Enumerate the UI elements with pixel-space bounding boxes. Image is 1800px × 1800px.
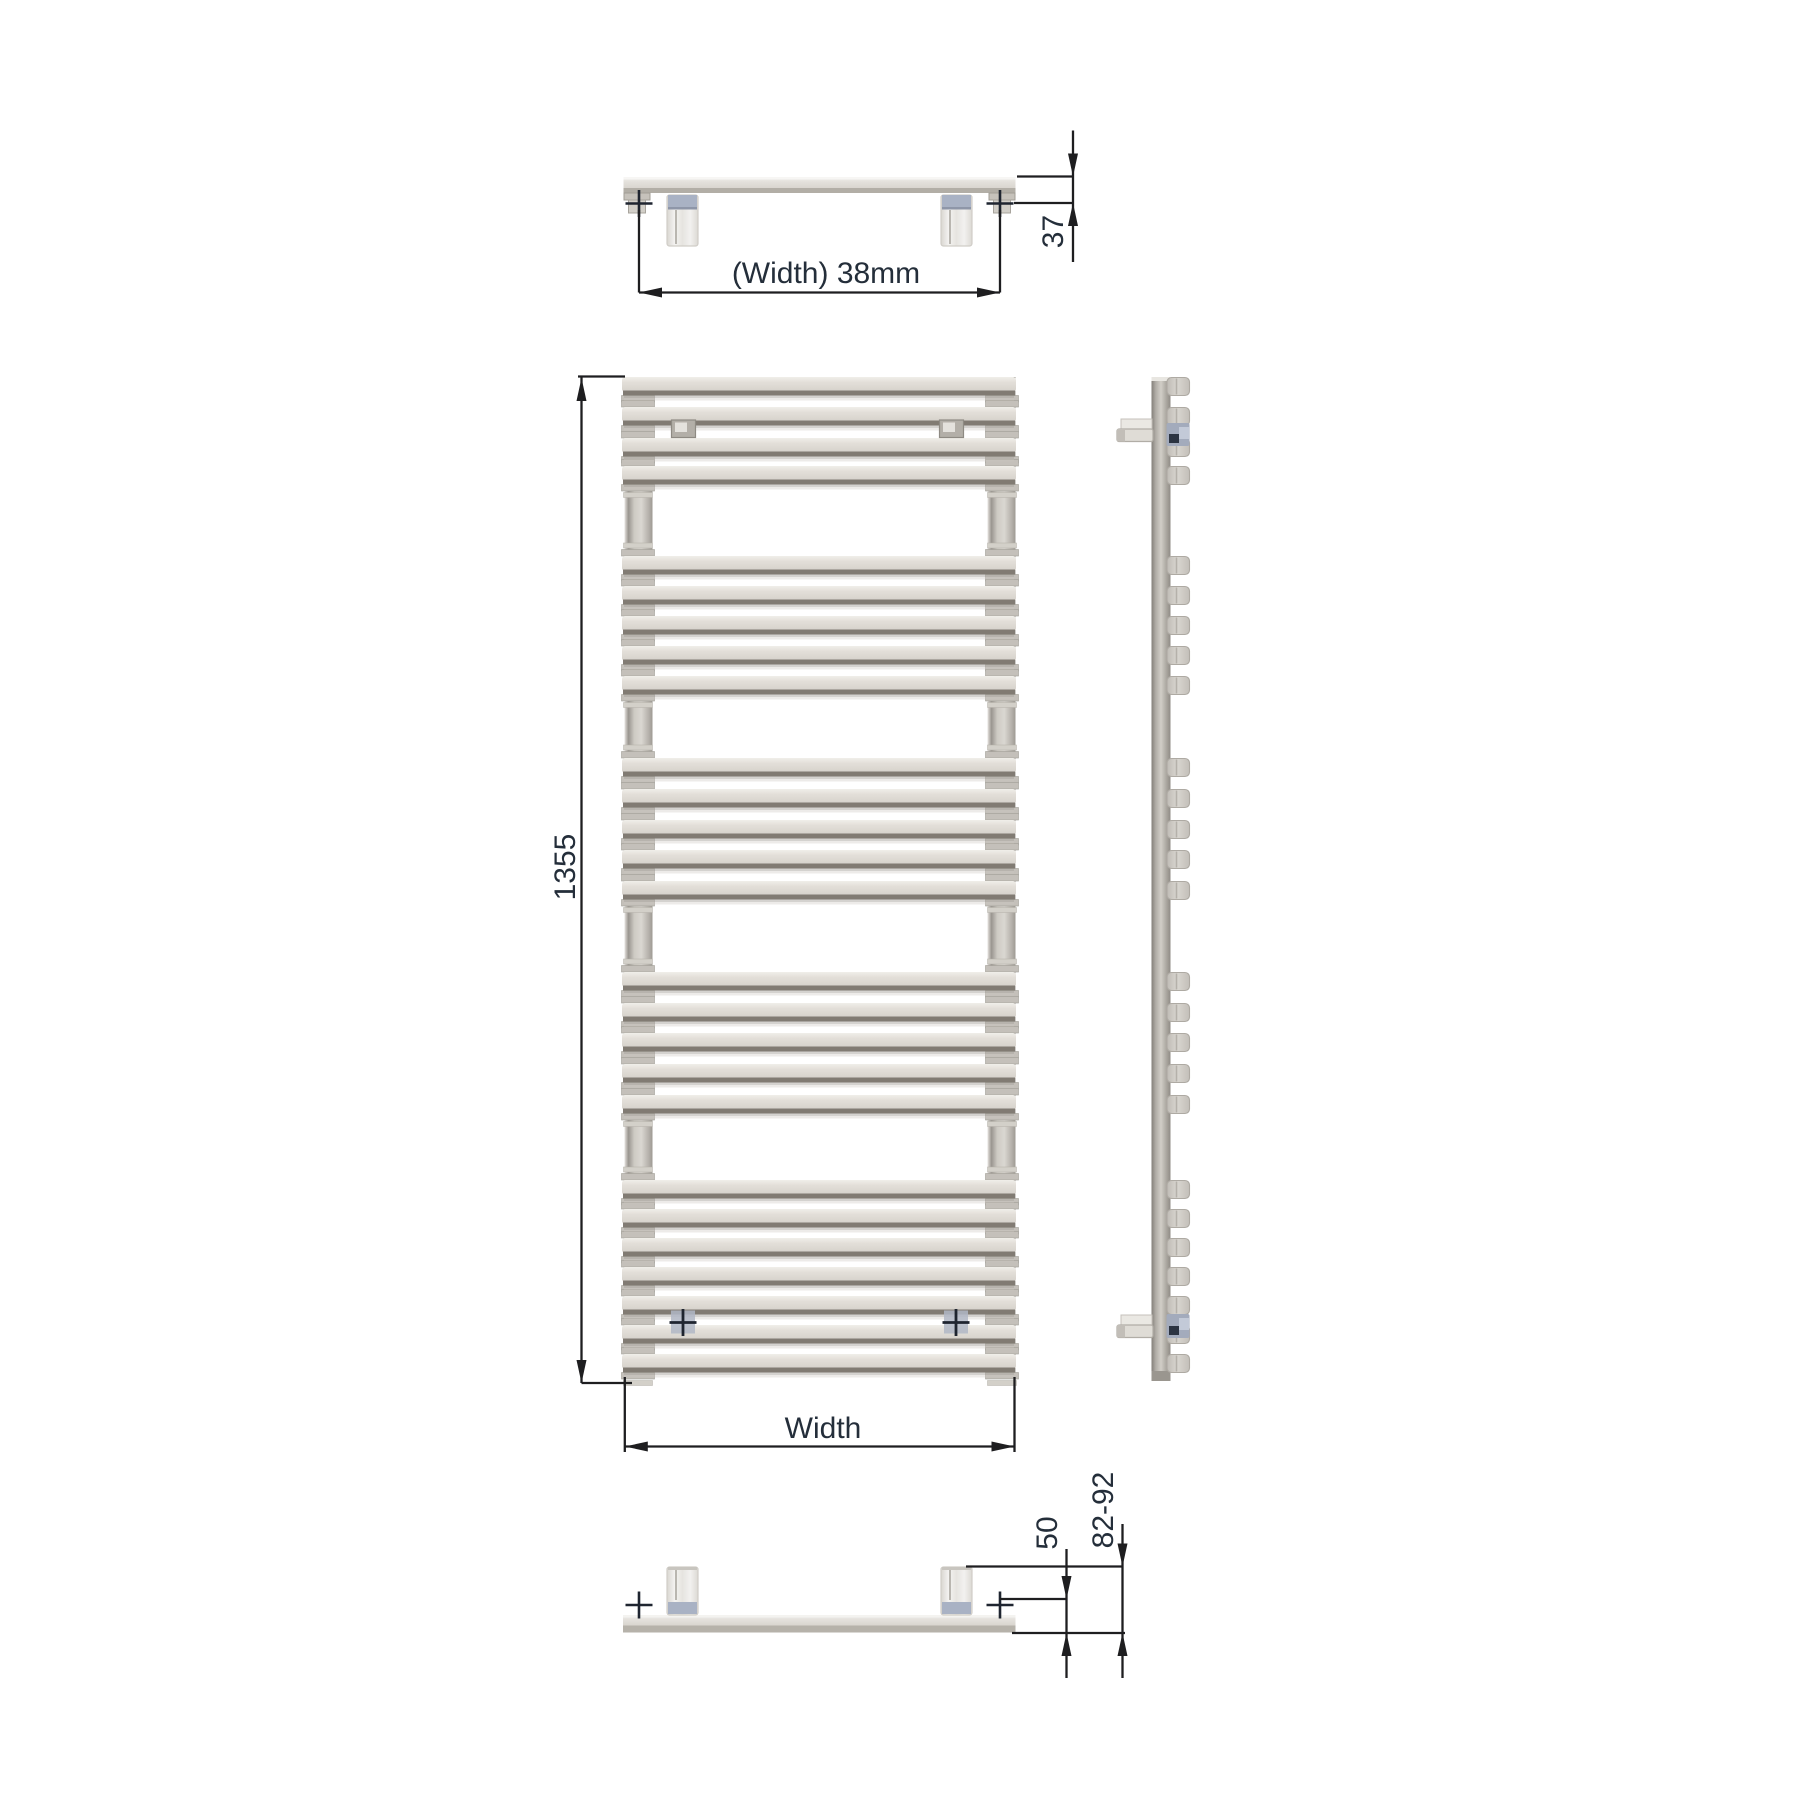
svg-text:37: 37 [1037, 215, 1070, 248]
svg-text:1355: 1355 [549, 834, 582, 901]
svg-text:Width: Width [785, 1412, 862, 1445]
svg-text:50: 50 [1031, 1516, 1064, 1549]
svg-text:(Width) 38mm: (Width) 38mm [732, 257, 920, 290]
svg-text:82-92: 82-92 [1087, 1472, 1120, 1549]
